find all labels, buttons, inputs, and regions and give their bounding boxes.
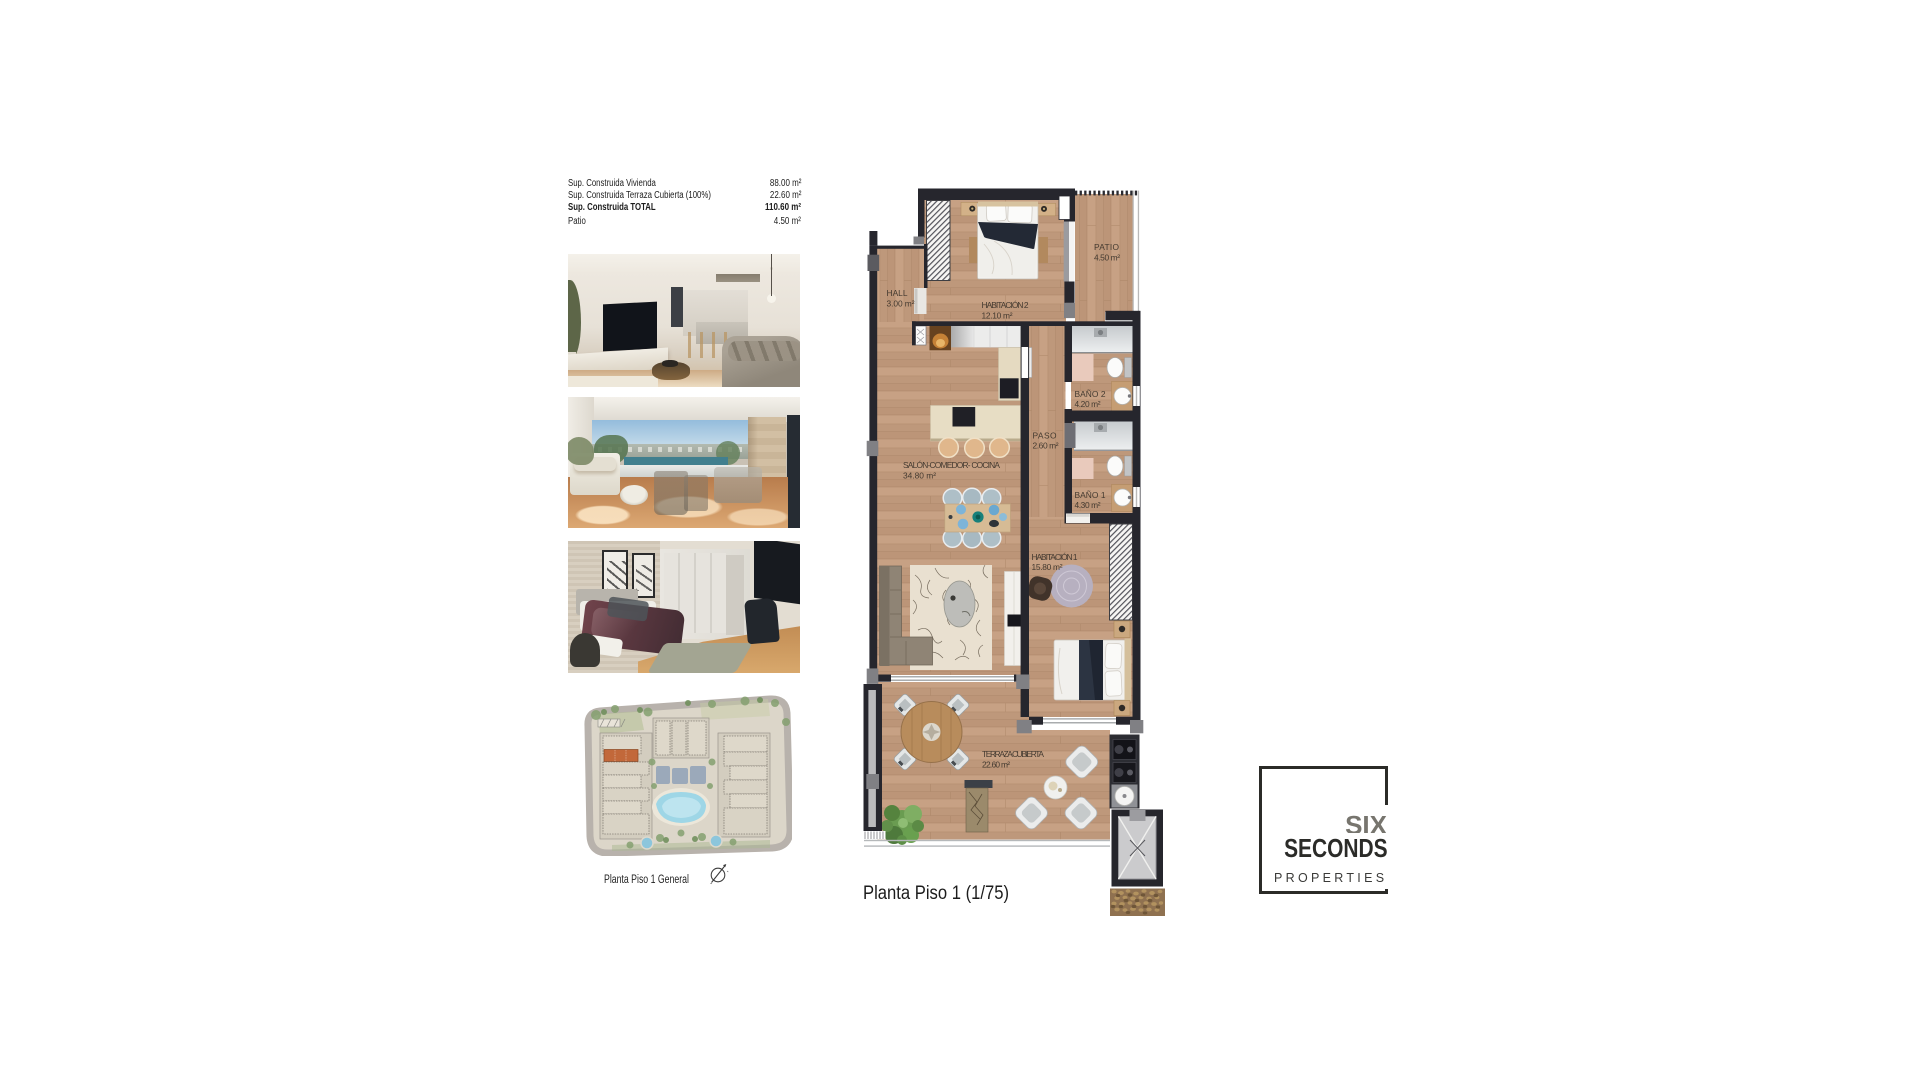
svg-text:TERRAZA CUBIERTA: TERRAZA CUBIERTA xyxy=(982,749,1044,759)
svg-text:PATIO: PATIO xyxy=(1094,242,1119,252)
svg-text:22.60 m²: 22.60 m² xyxy=(982,760,1010,770)
svg-text:34.80 m²: 34.80 m² xyxy=(903,471,936,481)
svg-text:HABITACIÓN 2: HABITACIÓN 2 xyxy=(982,300,1029,310)
svg-text:15.80 m²: 15.80 m² xyxy=(1032,562,1063,572)
svg-text:HALL: HALL xyxy=(887,288,908,298)
svg-text:SALÓN-COMEDOR- COCINA: SALÓN-COMEDOR- COCINA xyxy=(903,460,1000,470)
svg-text:HABITACIÓN 1: HABITACIÓN 1 xyxy=(1032,552,1078,562)
svg-text:PASO: PASO xyxy=(1033,431,1057,441)
svg-text:4.50 m²: 4.50 m² xyxy=(1094,253,1120,263)
svg-text:12.10 m²: 12.10 m² xyxy=(982,311,1013,321)
svg-text:4.20 m²: 4.20 m² xyxy=(1075,399,1101,409)
svg-text:BAÑO 2: BAÑO 2 xyxy=(1075,389,1106,399)
svg-text:BAÑO 1: BAÑO 1 xyxy=(1075,490,1106,500)
svg-text:4.30 m²: 4.30 m² xyxy=(1075,500,1101,510)
svg-text:3.00 m²: 3.00 m² xyxy=(887,299,915,309)
svg-text:2.60 m²: 2.60 m² xyxy=(1033,441,1059,451)
